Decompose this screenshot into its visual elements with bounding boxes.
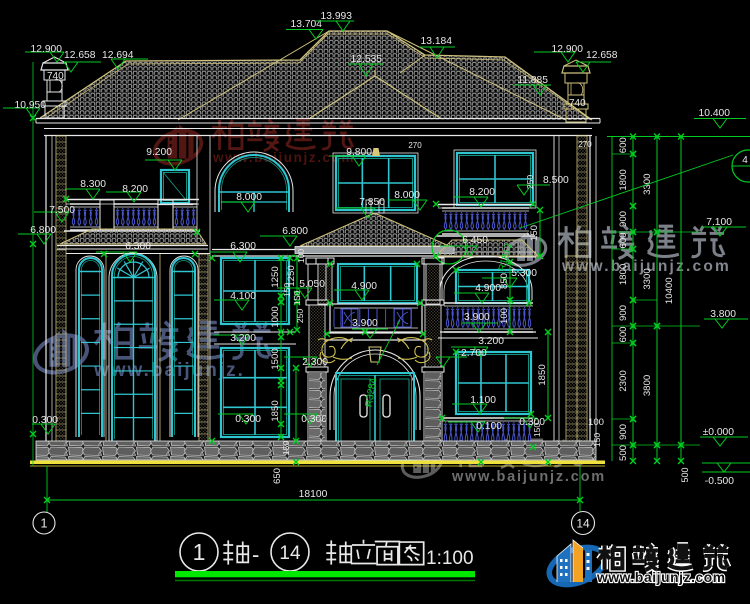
svg-text:7.100: 7.100 xyxy=(706,217,732,228)
svg-text:2.300: 2.300 xyxy=(302,357,328,368)
svg-text:6.800: 6.800 xyxy=(282,226,308,237)
svg-text:1850: 1850 xyxy=(270,400,281,421)
svg-text:7.500: 7.500 xyxy=(49,205,75,216)
svg-text:3.900: 3.900 xyxy=(464,312,490,323)
svg-text:5.300: 5.300 xyxy=(511,268,537,279)
svg-text:9.200: 9.200 xyxy=(146,147,172,158)
svg-text:14: 14 xyxy=(576,517,590,531)
svg-text:500: 500 xyxy=(680,467,690,482)
svg-text:150: 150 xyxy=(292,291,302,306)
svg-text:14: 14 xyxy=(279,543,301,564)
svg-text:8.200: 8.200 xyxy=(469,187,495,198)
svg-text:150: 150 xyxy=(592,433,602,448)
svg-text:1250: 1250 xyxy=(270,266,281,287)
svg-text:0.300: 0.300 xyxy=(235,414,261,425)
svg-text:2.700: 2.700 xyxy=(461,348,487,359)
svg-text:1800: 1800 xyxy=(618,264,629,285)
svg-text:100: 100 xyxy=(588,417,604,428)
svg-text:6.450: 6.450 xyxy=(462,235,488,246)
svg-text:3.200: 3.200 xyxy=(478,336,504,347)
svg-text:100: 100 xyxy=(296,249,306,264)
svg-text:8.000: 8.000 xyxy=(394,190,420,201)
svg-text:650: 650 xyxy=(272,468,283,484)
svg-text:500: 500 xyxy=(618,445,629,461)
svg-text:0.300: 0.300 xyxy=(32,415,58,426)
svg-text:3.800: 3.800 xyxy=(710,309,736,320)
svg-text:www.baijunjz.com: www.baijunjz.com xyxy=(451,469,606,485)
svg-text:850: 850 xyxy=(499,273,510,289)
svg-text:8.000: 8.000 xyxy=(236,192,262,203)
svg-text:900: 900 xyxy=(618,424,629,440)
svg-text:3.200: 3.200 xyxy=(230,333,256,344)
svg-text:12.658: 12.658 xyxy=(586,50,618,61)
svg-text:2300: 2300 xyxy=(618,370,629,391)
svg-text:9.800: 9.800 xyxy=(346,147,372,158)
svg-text:3.900: 3.900 xyxy=(352,318,378,329)
svg-text:7.850: 7.850 xyxy=(359,197,385,208)
svg-text:8.500: 8.500 xyxy=(543,175,569,186)
svg-text:4.100: 4.100 xyxy=(230,291,256,302)
svg-text:±0.000: ±0.000 xyxy=(703,427,735,438)
svg-text:-: - xyxy=(252,542,259,567)
svg-text:1: 1 xyxy=(41,517,48,531)
svg-text:270: 270 xyxy=(408,141,422,150)
svg-text:900: 900 xyxy=(618,305,629,321)
svg-text:12.535: 12.535 xyxy=(351,54,383,65)
svg-text:12.900: 12.900 xyxy=(552,44,584,55)
svg-text:150: 150 xyxy=(532,423,542,438)
svg-text:150: 150 xyxy=(529,225,540,241)
svg-text:1250: 1250 xyxy=(286,265,297,286)
svg-text:6.300: 6.300 xyxy=(230,241,256,252)
svg-text:3300: 3300 xyxy=(642,268,653,289)
svg-text:100: 100 xyxy=(499,308,510,324)
svg-text:6.800: 6.800 xyxy=(30,225,56,236)
svg-text:600: 600 xyxy=(618,232,629,248)
svg-text:1850: 1850 xyxy=(537,364,548,385)
svg-text:600: 600 xyxy=(618,326,629,342)
svg-text:10.950: 10.950 xyxy=(15,100,47,111)
svg-text:12.900: 12.900 xyxy=(31,44,63,55)
svg-text:12.658: 12.658 xyxy=(64,50,96,61)
svg-text:1:100: 1:100 xyxy=(426,548,474,569)
svg-text:4: 4 xyxy=(742,155,748,166)
svg-text:740: 740 xyxy=(47,71,64,82)
svg-text:www.baijunjz.com: www.baijunjz.com xyxy=(596,570,726,585)
svg-text:1.100: 1.100 xyxy=(470,395,496,406)
svg-text:12.694: 12.694 xyxy=(102,50,134,61)
svg-text:900: 900 xyxy=(618,211,629,227)
svg-text:18100: 18100 xyxy=(299,489,328,500)
svg-text:600: 600 xyxy=(618,137,629,153)
svg-text:740: 740 xyxy=(569,98,586,109)
svg-text:8.300: 8.300 xyxy=(80,179,106,190)
svg-text:13.184: 13.184 xyxy=(421,36,453,47)
svg-text:5.050: 5.050 xyxy=(299,279,325,290)
svg-text:1000: 1000 xyxy=(270,306,281,327)
svg-text:150: 150 xyxy=(281,441,291,456)
svg-text:-0.500: -0.500 xyxy=(705,476,734,487)
svg-text:13.993: 13.993 xyxy=(321,11,353,22)
svg-text:1800: 1800 xyxy=(618,169,629,190)
svg-text:4.900: 4.900 xyxy=(475,283,501,294)
svg-text:250: 250 xyxy=(295,309,305,324)
svg-text:10400: 10400 xyxy=(664,277,675,304)
svg-text:3800: 3800 xyxy=(642,375,653,396)
svg-text:10.400: 10.400 xyxy=(699,108,731,119)
svg-text:0.100: 0.100 xyxy=(476,421,502,432)
svg-text:1: 1 xyxy=(193,539,206,565)
svg-text:270: 270 xyxy=(578,140,592,149)
svg-text:0.300: 0.300 xyxy=(301,414,327,425)
svg-text:11.885: 11.885 xyxy=(517,75,548,86)
svg-text:250: 250 xyxy=(525,175,535,190)
svg-text:4.900: 4.900 xyxy=(351,281,377,292)
svg-text:6.300: 6.300 xyxy=(125,241,151,252)
svg-text:8.200: 8.200 xyxy=(122,184,148,195)
